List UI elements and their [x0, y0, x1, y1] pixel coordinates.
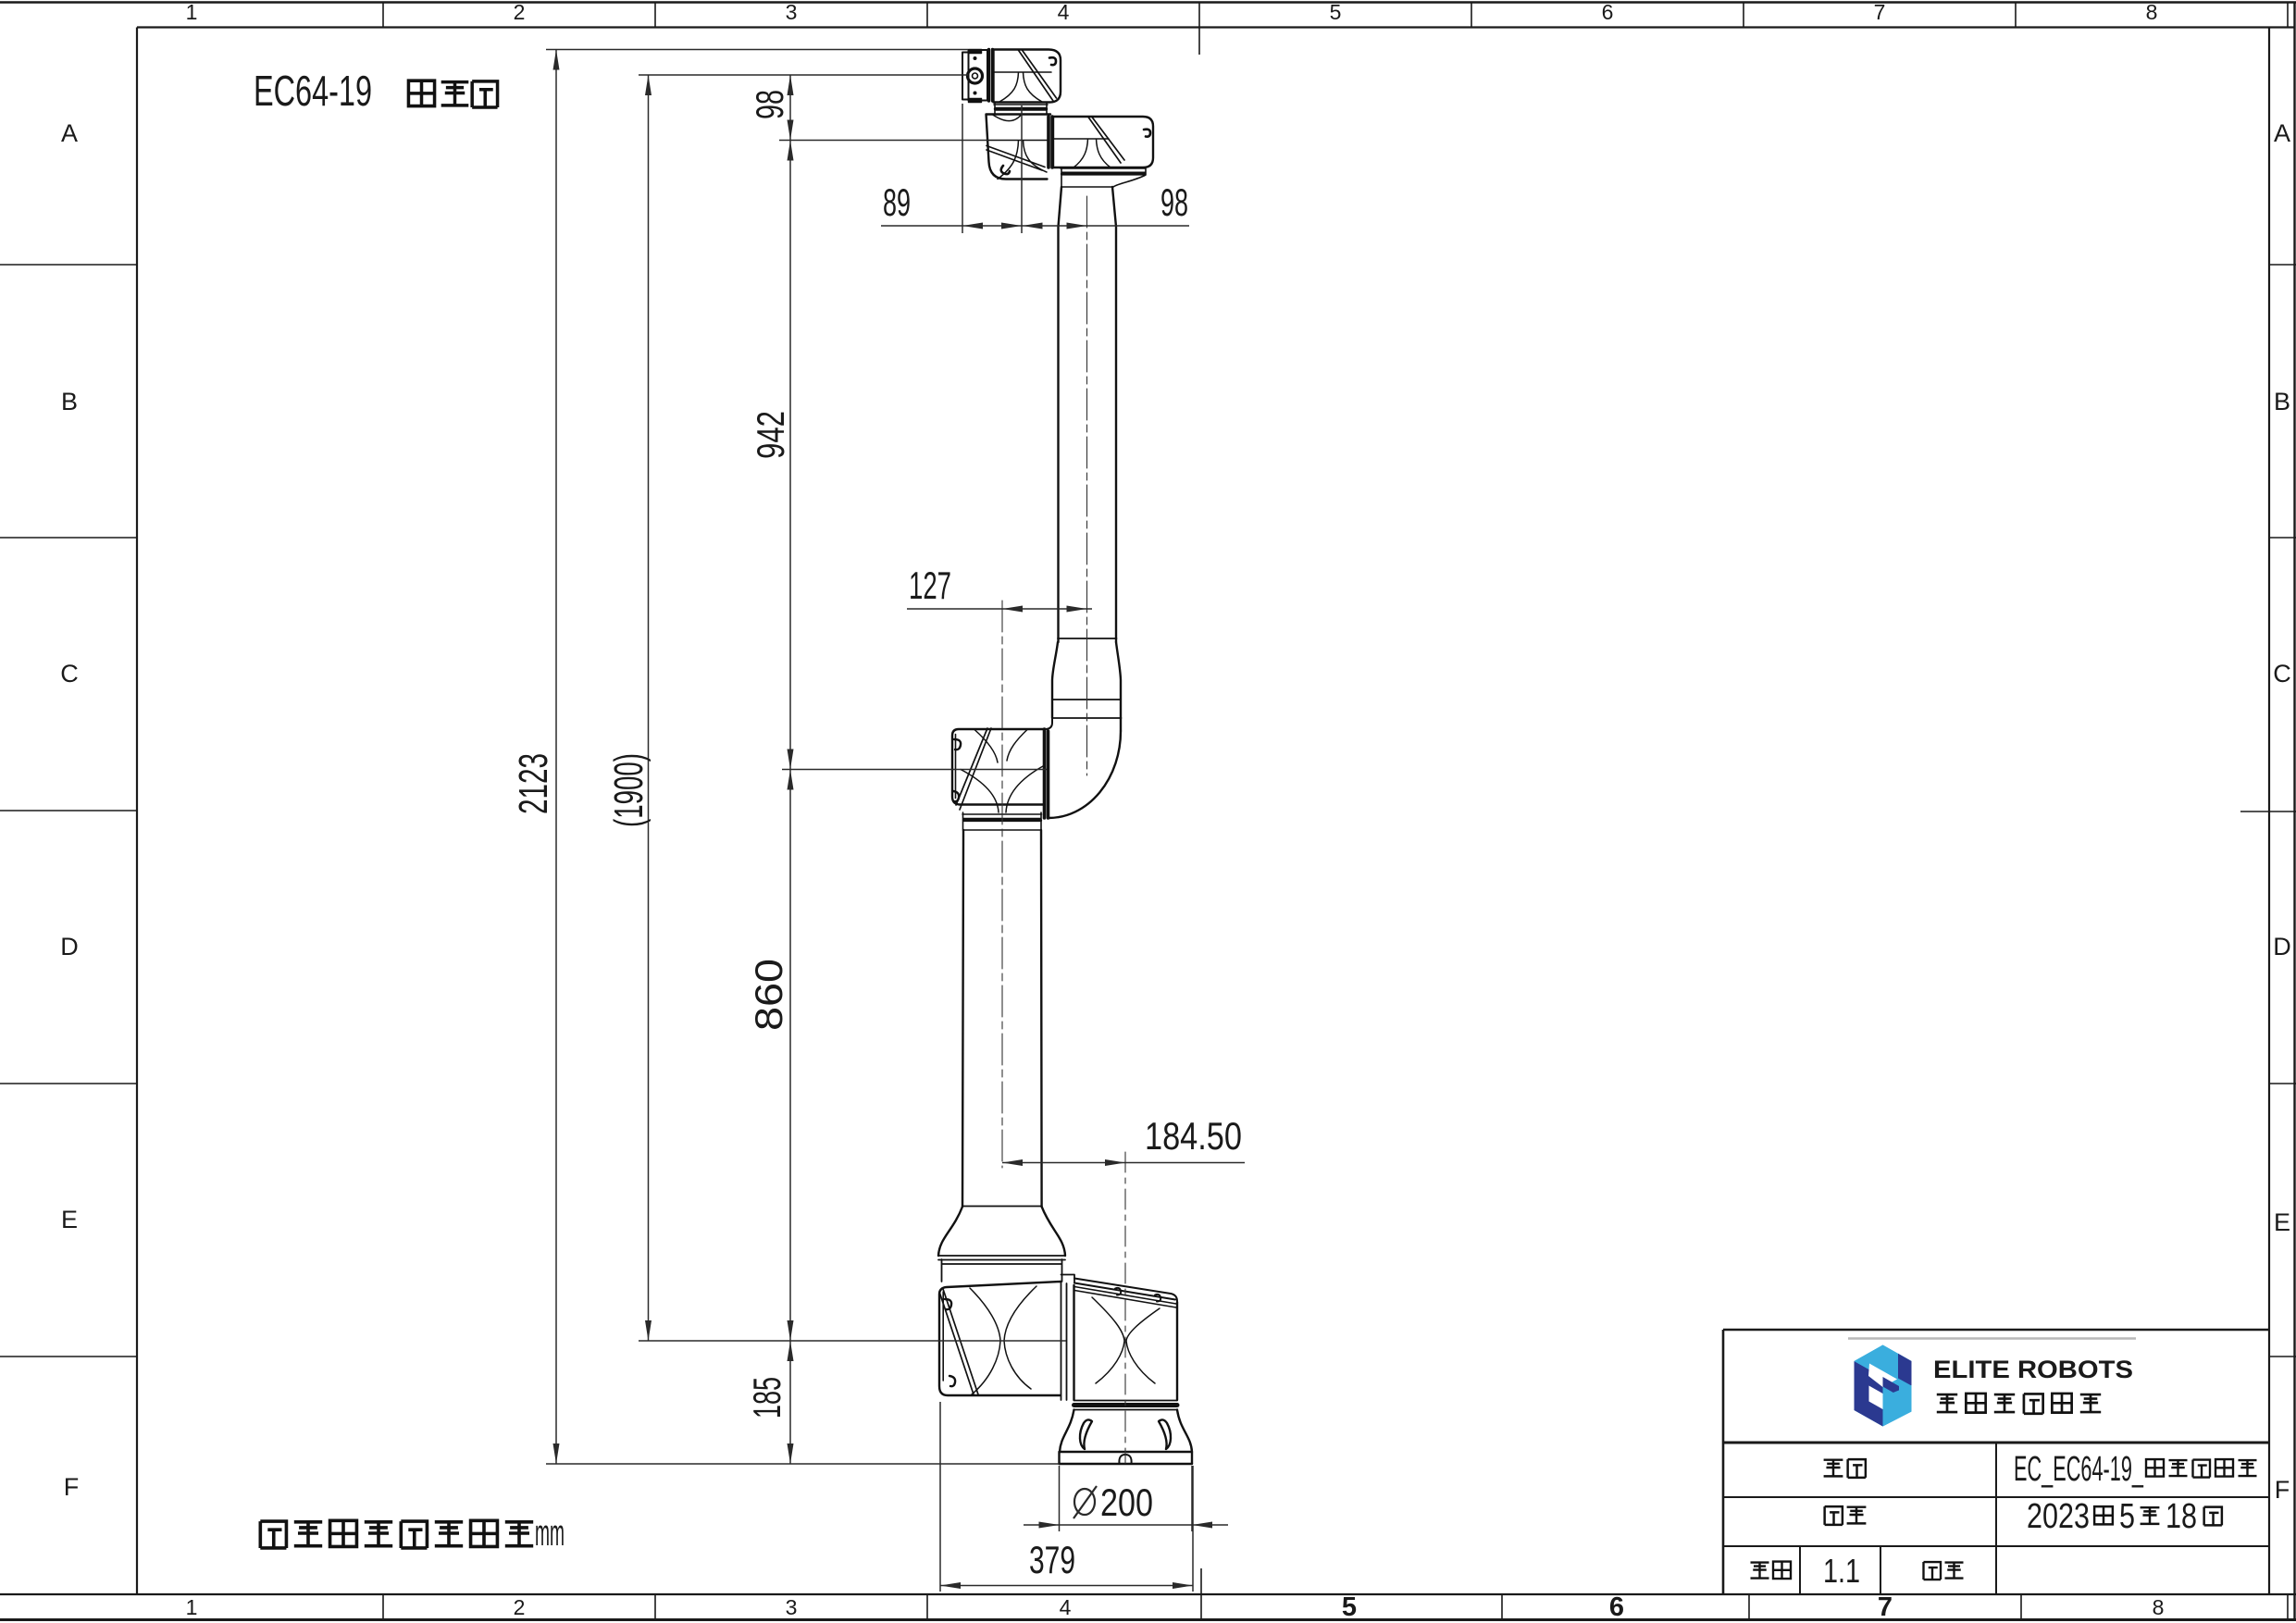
svg-text:4: 4 — [1060, 1595, 1072, 1619]
svg-text:127: 127 — [909, 564, 951, 607]
svg-text:ELITE ROBOTS: ELITE ROBOTS — [1933, 1356, 2133, 1383]
svg-text:(1900): (1900) — [606, 753, 652, 827]
svg-text:1: 1 — [186, 0, 198, 24]
svg-text:2023: 2023 — [2027, 1497, 2090, 1536]
svg-text:EC_EC64-19_: EC_EC64-19_ — [2014, 1450, 2143, 1489]
svg-text:7: 7 — [1878, 1592, 1893, 1622]
svg-text:3: 3 — [786, 0, 798, 24]
svg-text:1.1: 1.1 — [1823, 1552, 1860, 1590]
svg-text:1: 1 — [186, 1595, 198, 1619]
svg-text:4: 4 — [1058, 0, 1070, 24]
svg-text:185: 185 — [745, 1377, 788, 1419]
svg-text:A: A — [61, 119, 78, 147]
svg-text:5: 5 — [1342, 1592, 1357, 1622]
svg-text:8: 8 — [2146, 0, 2158, 24]
svg-text:F: F — [2275, 1476, 2290, 1504]
svg-text:98: 98 — [1160, 180, 1188, 224]
svg-text:mm: mm — [535, 1513, 565, 1554]
svg-text:184.50: 184.50 — [1145, 1114, 1242, 1158]
svg-text:5: 5 — [1330, 0, 1342, 24]
svg-text:5: 5 — [2119, 1497, 2135, 1536]
svg-text:379: 379 — [1029, 1538, 1075, 1581]
svg-text:D: D — [60, 933, 79, 960]
svg-text:3: 3 — [786, 1595, 798, 1619]
svg-text:8: 8 — [2153, 1595, 2165, 1619]
svg-text:942: 942 — [749, 411, 792, 459]
svg-text:6: 6 — [1602, 0, 1614, 24]
svg-text:B: B — [2274, 388, 2290, 415]
svg-text:200: 200 — [1100, 1481, 1153, 1524]
svg-text:EC64-19: EC64-19 — [254, 67, 372, 115]
svg-text:6: 6 — [1609, 1592, 1624, 1622]
svg-text:B: B — [61, 388, 78, 415]
svg-text:98: 98 — [748, 90, 791, 119]
svg-text:C: C — [2273, 660, 2291, 688]
svg-text:E: E — [2274, 1208, 2290, 1236]
svg-text:89: 89 — [883, 180, 911, 224]
svg-text:E: E — [61, 1206, 78, 1233]
svg-text:18: 18 — [2166, 1497, 2197, 1536]
svg-text:2: 2 — [514, 0, 526, 24]
svg-text:2123: 2123 — [511, 753, 556, 814]
svg-text:7: 7 — [1874, 0, 1886, 24]
svg-text:C: C — [60, 660, 79, 688]
svg-text:860: 860 — [747, 959, 790, 1031]
svg-text:2: 2 — [514, 1595, 526, 1619]
svg-text:D: D — [2273, 933, 2291, 960]
svg-text:F: F — [64, 1473, 80, 1501]
svg-text:A: A — [2274, 119, 2290, 147]
